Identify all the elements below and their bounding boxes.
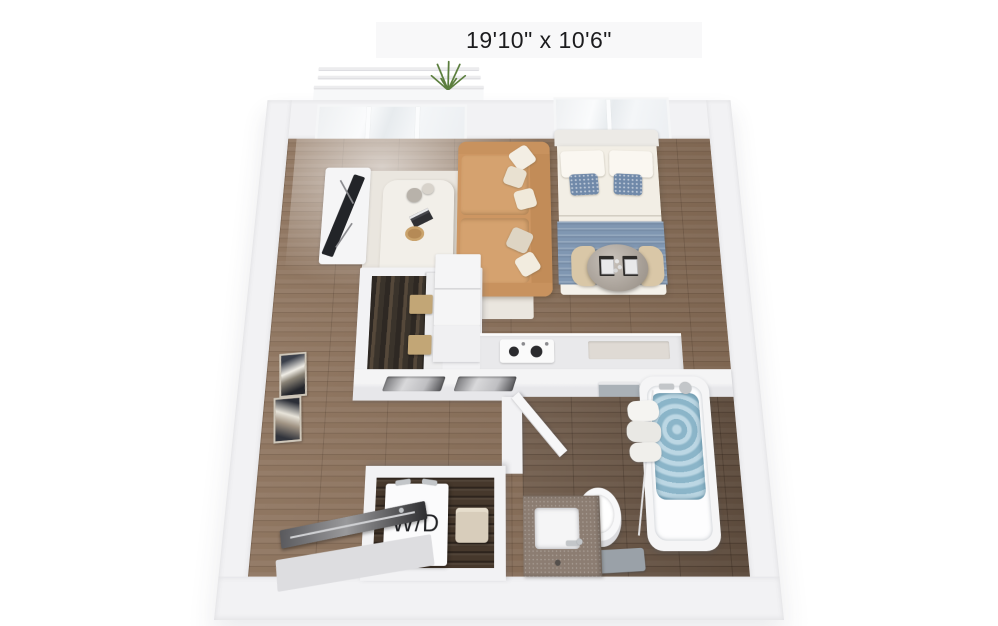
plant-icon [427,57,469,90]
framed-wall-art [273,396,301,444]
glass-wall [314,105,467,144]
kitchen-cabinet [433,326,480,362]
book [409,208,433,228]
vanity [523,496,602,577]
window-mullion [415,107,420,141]
floorplan-canvas: 19'10" x 10'6" [0,0,998,626]
accent-pillow [614,173,643,196]
floorplan-scene: W/D [214,100,784,620]
drain [555,560,561,566]
tray [405,226,424,241]
stove [500,339,554,362]
shower-head-icon [679,382,692,394]
dimension-label: 19'10" x 10'6" [466,27,612,54]
stove-knob [545,342,549,346]
hanging-clothes [367,276,426,369]
sofa-armrest [458,142,549,154]
glassware [615,259,620,263]
faucet-handle [577,539,583,545]
towel [627,420,662,443]
balcony-floor [313,89,484,101]
duvet-fold [559,215,662,217]
bath-mat [597,548,646,574]
vase [406,188,422,202]
dimension-label-tab: 19'10" x 10'6" [376,22,702,58]
storage-box [409,295,433,314]
towel [629,442,663,463]
fridge-door-seam [435,288,481,290]
window-mullion [365,107,371,141]
tub-faucet [659,384,674,390]
plate [601,259,615,274]
wall-niche [382,376,446,391]
framed-wall-art [279,352,307,398]
laundry-basket [455,508,488,543]
sofa-back [530,142,553,297]
stove-burner [509,347,519,357]
plate [624,259,638,274]
countertop-section [588,341,670,359]
refrigerator [434,254,481,326]
towel [626,399,660,422]
storage-box [408,335,432,355]
tv-console [319,168,371,265]
accent-pillow [569,173,600,196]
place-setting [599,256,615,276]
stove-knob [521,342,525,346]
wall-niche [453,376,516,391]
vase [422,183,434,194]
bed-headboard [554,130,659,147]
place-setting [622,256,638,276]
stove-burner [531,346,543,358]
